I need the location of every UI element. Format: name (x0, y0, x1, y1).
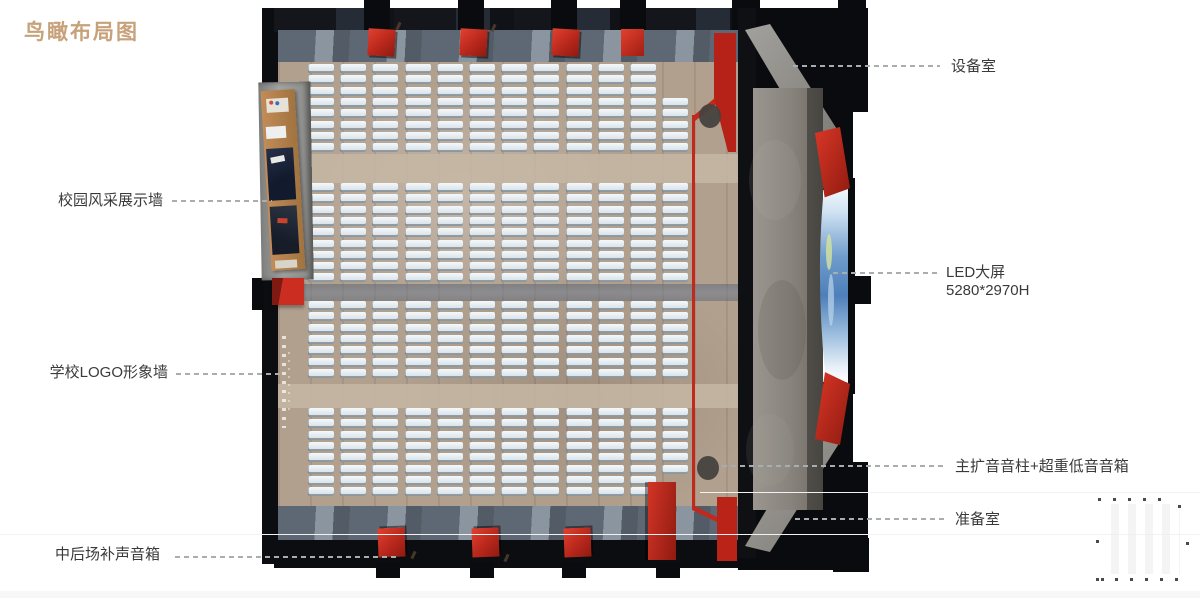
seat (469, 217, 495, 226)
seat (662, 369, 688, 378)
seat (501, 369, 527, 378)
seat (501, 431, 527, 440)
seat (372, 476, 398, 485)
stage-edge-trim (692, 505, 717, 522)
seat (630, 194, 656, 203)
seat (437, 465, 463, 474)
rear-fill-speaker (564, 528, 592, 558)
seat (372, 442, 398, 451)
seat (662, 98, 688, 107)
seat (533, 98, 559, 107)
seat (501, 273, 527, 282)
main-pa-column (717, 497, 737, 561)
seat (437, 194, 463, 203)
seat (662, 109, 688, 118)
seat (437, 324, 463, 333)
seat (372, 240, 398, 249)
seat (566, 419, 592, 428)
seat (566, 465, 592, 474)
seat (501, 487, 527, 496)
seat (630, 240, 656, 249)
seat (469, 408, 495, 417)
seat (533, 183, 559, 192)
seat (501, 132, 527, 141)
seat (437, 109, 463, 118)
seat (630, 369, 656, 378)
watermark-dot (1101, 578, 1104, 581)
seat (405, 251, 431, 260)
seat (566, 346, 592, 355)
seat (566, 453, 592, 462)
seat (469, 324, 495, 333)
seat (598, 64, 624, 73)
seat (340, 87, 366, 96)
seat (598, 98, 624, 107)
seat (566, 75, 592, 84)
seat (598, 262, 624, 271)
seat (501, 335, 527, 344)
seat (501, 251, 527, 260)
roof-beam (562, 562, 586, 578)
led-screen-size: 5280*2970H (946, 282, 1029, 300)
seat (662, 121, 688, 130)
seat (533, 487, 559, 496)
seat (308, 453, 334, 462)
seat (630, 143, 656, 152)
seat (372, 419, 398, 428)
seat (598, 194, 624, 203)
leader-rear-speakers (175, 556, 397, 558)
seat (469, 419, 495, 428)
seat (566, 442, 592, 451)
seat (308, 358, 334, 367)
seat (405, 194, 431, 203)
seat (437, 487, 463, 496)
seat (501, 442, 527, 451)
seat (501, 419, 527, 428)
seat (469, 183, 495, 192)
seat (437, 419, 463, 428)
leader-equipment-room (793, 65, 940, 67)
seat (566, 194, 592, 203)
seat (372, 87, 398, 96)
watermark-dot (1096, 578, 1099, 581)
seat (340, 453, 366, 462)
poster (270, 205, 300, 255)
seat (340, 98, 366, 107)
campus-display-wall (258, 82, 313, 281)
seat (630, 228, 656, 237)
seat (469, 369, 495, 378)
seat (662, 335, 688, 344)
seat (405, 240, 431, 249)
seat (372, 98, 398, 107)
roof-beam (838, 0, 866, 14)
seat (533, 228, 559, 237)
seat (340, 312, 366, 321)
seat (598, 87, 624, 96)
watermark-dot (1128, 498, 1131, 501)
seat (469, 228, 495, 237)
rear-fill-speaker (378, 528, 406, 558)
watermark-dot (1143, 498, 1146, 501)
seat (372, 194, 398, 203)
watermark-dot (1160, 578, 1163, 581)
seat (533, 194, 559, 203)
seat (340, 143, 366, 152)
wall-tab (850, 276, 871, 304)
left-wall-speaker (272, 278, 304, 305)
seat (566, 132, 592, 141)
main-pa-speaker (699, 104, 721, 128)
rear-wall-speaker (551, 28, 579, 56)
seat (598, 453, 624, 462)
seat (469, 109, 495, 118)
seat (469, 431, 495, 440)
seat (630, 132, 656, 141)
seat (372, 262, 398, 271)
seat (340, 121, 366, 130)
seat (630, 324, 656, 333)
seat (469, 465, 495, 474)
seat (340, 75, 366, 84)
seat (340, 419, 366, 428)
rear-walkway (278, 30, 738, 62)
seat (533, 442, 559, 451)
seat (372, 312, 398, 321)
roof-beam (364, 0, 390, 30)
seat (469, 251, 495, 260)
watermark-bars (1102, 504, 1180, 574)
seat (372, 369, 398, 378)
seat (630, 301, 656, 310)
seat (405, 335, 431, 344)
watermark-dot (1175, 578, 1178, 581)
seat (405, 75, 431, 84)
seat (598, 419, 624, 428)
seat (437, 75, 463, 84)
seat (630, 408, 656, 417)
seat (340, 251, 366, 260)
seat (630, 335, 656, 344)
seat (598, 109, 624, 118)
seat (598, 183, 624, 192)
seat (340, 273, 366, 282)
seat (405, 324, 431, 333)
watermark-dot (1158, 498, 1161, 501)
seat (533, 75, 559, 84)
seat (372, 251, 398, 260)
seat (662, 301, 688, 310)
seat (662, 324, 688, 333)
seat (566, 206, 592, 215)
watermark-dot (1130, 578, 1133, 581)
wall-step (833, 538, 869, 572)
seat (340, 324, 366, 333)
seat (566, 312, 592, 321)
seat (630, 64, 656, 73)
seat (437, 206, 463, 215)
slide-edge (0, 591, 1200, 598)
seat (308, 419, 334, 428)
seat (566, 487, 592, 496)
watermark-dot (1115, 578, 1118, 581)
seat (469, 194, 495, 203)
seat (566, 121, 592, 130)
seat (437, 431, 463, 440)
rear-wall-speaker (621, 29, 644, 56)
seat (437, 87, 463, 96)
seat (308, 312, 334, 321)
seat (598, 335, 624, 344)
seat (533, 64, 559, 73)
seat (566, 228, 592, 237)
seat (372, 132, 398, 141)
seat (372, 75, 398, 84)
subwoofer-speaker (697, 456, 719, 480)
seat (372, 408, 398, 417)
seat (405, 301, 431, 310)
stage-section (690, 0, 872, 575)
seat (566, 335, 592, 344)
seat (437, 143, 463, 152)
seat (437, 262, 463, 271)
seat (340, 408, 366, 417)
seat (598, 132, 624, 141)
seat (372, 109, 398, 118)
seat (437, 408, 463, 417)
seat (437, 132, 463, 141)
seat (437, 217, 463, 226)
seat (501, 324, 527, 333)
seat (437, 335, 463, 344)
seat (405, 358, 431, 367)
seat (469, 346, 495, 355)
seat (340, 465, 366, 474)
seat (501, 217, 527, 226)
seat (630, 442, 656, 451)
seat (308, 143, 334, 152)
seat (630, 251, 656, 260)
seat (630, 183, 656, 192)
seat (598, 143, 624, 152)
seat (662, 442, 688, 451)
seat (405, 98, 431, 107)
seat (372, 301, 398, 310)
seat (405, 132, 431, 141)
seat (662, 206, 688, 215)
seat (308, 369, 334, 378)
seat (372, 487, 398, 496)
seat (340, 442, 366, 451)
seat (662, 273, 688, 282)
seat (437, 98, 463, 107)
seat (501, 87, 527, 96)
seat (630, 465, 656, 474)
seat (405, 217, 431, 226)
seat (533, 251, 559, 260)
seat (533, 206, 559, 215)
seat (662, 465, 688, 474)
seat (469, 358, 495, 367)
seat (437, 476, 463, 485)
seat (566, 183, 592, 192)
seat (501, 453, 527, 462)
callout-rear-speakers: 中后场补声音箱 (28, 546, 160, 564)
seat (598, 369, 624, 378)
seat (372, 431, 398, 440)
rear-wall-speaker (459, 28, 487, 56)
seat (630, 206, 656, 215)
seat (501, 476, 527, 485)
seat (308, 442, 334, 451)
callout-led-screen: LED大屏 5280*2970H (946, 264, 1029, 300)
seat (501, 312, 527, 321)
seat (630, 346, 656, 355)
seat (662, 408, 688, 417)
seat (405, 369, 431, 378)
poster (277, 218, 287, 223)
seat (340, 228, 366, 237)
seat (405, 87, 431, 96)
seat (630, 273, 656, 282)
seat (630, 121, 656, 130)
seat (566, 217, 592, 226)
seat (662, 251, 688, 260)
seat (662, 453, 688, 462)
seat (501, 408, 527, 417)
seat (598, 228, 624, 237)
rear-wall-speaker (367, 28, 395, 56)
seat (533, 335, 559, 344)
seat (533, 408, 559, 417)
led-screen-graphic (826, 234, 832, 270)
seat (372, 465, 398, 474)
leader-led-screen (833, 272, 938, 274)
display-board (261, 89, 306, 271)
seat (437, 251, 463, 260)
seat (630, 431, 656, 440)
seat (437, 240, 463, 249)
seat (501, 121, 527, 130)
seat (533, 301, 559, 310)
seat (308, 64, 334, 73)
seat (598, 312, 624, 321)
seat (501, 64, 527, 73)
seat (340, 431, 366, 440)
seat (308, 75, 334, 84)
seat (598, 476, 624, 485)
leader-main-pa (722, 465, 945, 467)
seat (469, 87, 495, 96)
seat (405, 206, 431, 215)
led-screen-graphic (828, 274, 834, 326)
seat (405, 228, 431, 237)
seat (533, 121, 559, 130)
seat (405, 143, 431, 152)
leader-logo-wall (176, 373, 283, 375)
seat (405, 453, 431, 462)
seat (308, 335, 334, 344)
seat (566, 251, 592, 260)
seat (469, 262, 495, 271)
seat (372, 143, 398, 152)
seat (598, 273, 624, 282)
seat (630, 419, 656, 428)
seat (405, 346, 431, 355)
seat (405, 419, 431, 428)
seat (372, 273, 398, 282)
seat (630, 217, 656, 226)
seat (340, 64, 366, 73)
seat (405, 273, 431, 282)
seat (598, 346, 624, 355)
seat (372, 358, 398, 367)
seat (405, 465, 431, 474)
seat (501, 143, 527, 152)
wall-tab (252, 278, 264, 310)
roof-beam (458, 0, 484, 30)
seat (308, 408, 334, 417)
seat (501, 465, 527, 474)
seat (469, 335, 495, 344)
seat (566, 476, 592, 485)
seat (469, 476, 495, 485)
rear-fill-speaker (472, 528, 500, 558)
seat (469, 453, 495, 462)
seat (308, 132, 334, 141)
seat (469, 240, 495, 249)
main-pa-column (714, 33, 736, 152)
callout-display-wall: 校园风采展示墙 (28, 192, 163, 210)
watermark (1094, 496, 1192, 582)
seat (469, 121, 495, 130)
seat (469, 206, 495, 215)
seat (630, 75, 656, 84)
seat (662, 312, 688, 321)
seat (340, 217, 366, 226)
seat (437, 442, 463, 451)
seat (308, 487, 334, 496)
seat (469, 487, 495, 496)
seat (598, 408, 624, 417)
seat (501, 98, 527, 107)
seat (533, 109, 559, 118)
faint-guide-line (700, 492, 1200, 493)
seat (533, 217, 559, 226)
seat (598, 442, 624, 451)
seat (533, 431, 559, 440)
poster (275, 259, 297, 268)
seat (566, 143, 592, 152)
seat (533, 262, 559, 271)
seat (501, 194, 527, 203)
seat (630, 98, 656, 107)
seat (501, 240, 527, 249)
roof-beam (376, 562, 400, 578)
seat (662, 262, 688, 271)
seat (662, 217, 688, 226)
roof-beam (551, 0, 577, 30)
seat (598, 324, 624, 333)
seat (340, 183, 366, 192)
led-screen-label: LED大屏 (946, 264, 1029, 282)
seat (533, 465, 559, 474)
seat (501, 262, 527, 271)
seat (630, 262, 656, 271)
seat (566, 262, 592, 271)
watermark-dot (1098, 498, 1101, 501)
